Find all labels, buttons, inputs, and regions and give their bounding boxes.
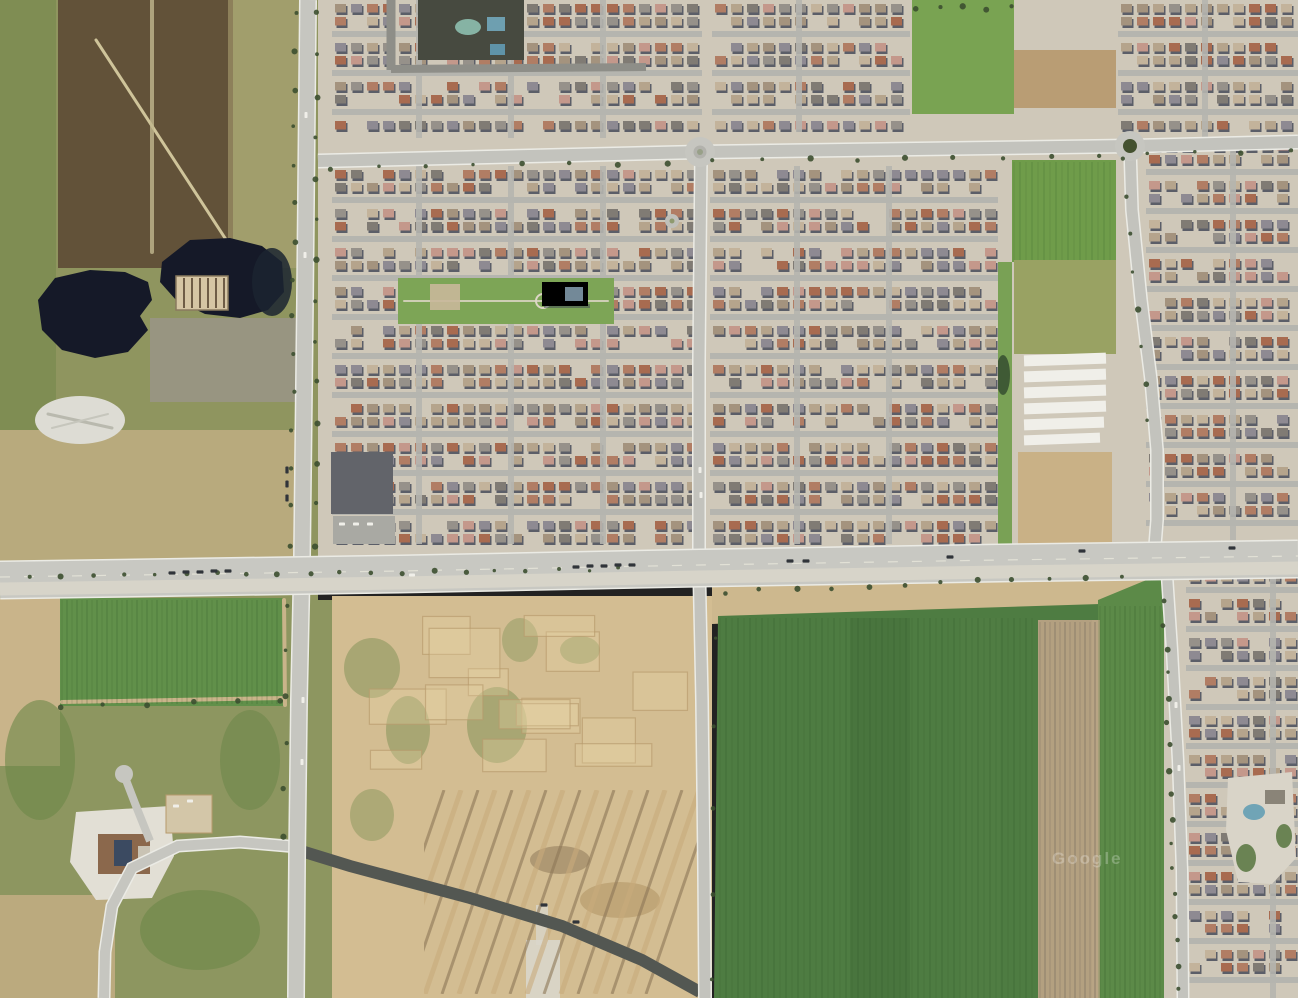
house-roof (1213, 350, 1224, 359)
house-roof (463, 495, 474, 504)
house-roof (1153, 17, 1164, 26)
house-roof (811, 43, 822, 52)
house-roof (1237, 729, 1248, 738)
tree (1170, 866, 1174, 870)
house-roof (713, 248, 724, 257)
tree (983, 7, 989, 13)
house-roof (399, 56, 410, 65)
house-roof (1285, 638, 1296, 647)
house-roof (809, 170, 820, 179)
house-roof (335, 17, 346, 26)
house-roof (607, 17, 618, 26)
house-roof (953, 339, 964, 348)
house-roof (687, 95, 698, 104)
tree (291, 124, 295, 128)
house-roof (825, 209, 836, 218)
house-roof (447, 443, 458, 452)
house-roof (479, 248, 490, 257)
tree (1289, 148, 1293, 152)
house-roof (1221, 638, 1232, 647)
house-roof (761, 404, 772, 413)
house-roof (827, 4, 838, 13)
house-roof (1185, 56, 1196, 65)
vehicle (1229, 546, 1236, 549)
house-roof (729, 287, 740, 296)
house-roof (985, 521, 996, 530)
house-roof (399, 17, 410, 26)
house-roof (527, 56, 538, 65)
tree (1009, 4, 1013, 8)
house-roof (559, 121, 570, 130)
house-roof (655, 482, 666, 491)
house-roof (715, 56, 726, 65)
house-roof (671, 95, 682, 104)
house-roof (761, 222, 772, 231)
house-roof (655, 222, 666, 231)
street (1146, 169, 1298, 175)
house-roof (399, 404, 410, 413)
house-roof (671, 482, 682, 491)
house-roof (1181, 428, 1192, 437)
house-roof (671, 495, 682, 504)
house-roof (1237, 638, 1248, 647)
house-roof (447, 417, 458, 426)
house-roof (687, 4, 698, 13)
vehicle (211, 569, 218, 572)
tree (122, 572, 126, 576)
tree (1097, 154, 1101, 158)
tree (829, 587, 834, 592)
house-roof (1245, 415, 1256, 424)
house-roof (607, 4, 618, 13)
house-roof (543, 222, 554, 231)
house-roof (495, 495, 506, 504)
house-roof (969, 183, 980, 192)
house-roof (1149, 259, 1160, 268)
house-roof (607, 222, 618, 231)
house-roof (1261, 506, 1272, 515)
house-roof (479, 121, 490, 130)
house-roof (1205, 638, 1216, 647)
house-roof (1165, 493, 1176, 502)
house-roof (1197, 506, 1208, 515)
amenity-lawn-1 (1236, 844, 1256, 872)
house-roof (1261, 272, 1272, 281)
tree (315, 218, 318, 221)
vehicle (301, 759, 304, 765)
house-roof (431, 95, 442, 104)
house-roof (905, 339, 916, 348)
house-roof (809, 326, 820, 335)
house-roof (1165, 181, 1176, 190)
house-roof (875, 56, 886, 65)
house-roof (777, 300, 788, 309)
house-roof (857, 456, 868, 465)
house-roof (953, 170, 964, 179)
house-roof (905, 417, 916, 426)
house-roof (985, 170, 996, 179)
house-roof (825, 404, 836, 413)
house-roof (399, 378, 410, 387)
house-roof (921, 287, 932, 296)
house-roof (479, 82, 490, 91)
house-roof (809, 209, 820, 218)
tree (191, 699, 197, 705)
house-roof (655, 456, 666, 465)
house-roof (825, 443, 836, 452)
tree (314, 379, 319, 384)
house-roof (639, 82, 650, 91)
house-roof (1281, 82, 1292, 91)
tree (58, 573, 64, 579)
house-roof (335, 365, 346, 374)
house-roof (777, 339, 788, 348)
house-roof (383, 300, 394, 309)
house-roof (543, 495, 554, 504)
street (1146, 403, 1298, 409)
house-roof (575, 170, 586, 179)
house-roof (857, 365, 868, 374)
house-roof (873, 521, 884, 530)
street (1146, 364, 1298, 370)
house-roof (969, 339, 980, 348)
house-roof (1261, 155, 1272, 164)
house-roof (747, 17, 758, 26)
house-roof (559, 43, 570, 52)
house-roof (715, 4, 726, 13)
house-roof (655, 209, 666, 218)
house-roof (875, 43, 886, 52)
house-roof (1205, 677, 1216, 686)
house-roof (383, 248, 394, 257)
house-roof (985, 365, 996, 374)
house-roof (1265, 56, 1276, 65)
house-roof (671, 300, 682, 309)
house-roof (335, 339, 346, 348)
house-roof (1165, 506, 1176, 515)
house-roof (1261, 376, 1272, 385)
tree (1160, 623, 1165, 628)
house-roof (729, 495, 740, 504)
house-roof (873, 183, 884, 192)
house-roof (1197, 467, 1208, 476)
house-roof (543, 4, 554, 13)
house-roof (777, 521, 788, 530)
house-roof (1261, 220, 1272, 229)
house-roof (623, 456, 634, 465)
house-roof (447, 495, 458, 504)
house-roof (1205, 846, 1216, 855)
house-roof (937, 365, 948, 374)
vehicle (285, 467, 288, 474)
house-roof (969, 521, 980, 530)
house-roof (843, 4, 854, 13)
house-roof (495, 326, 506, 335)
house-roof (479, 365, 490, 374)
street (712, 70, 910, 76)
house-roof (1181, 220, 1192, 229)
house-roof (1189, 755, 1200, 764)
tree (794, 586, 800, 592)
house-roof (1261, 454, 1272, 463)
house-roof (687, 82, 698, 91)
house-roof (921, 222, 932, 231)
house-roof (985, 339, 996, 348)
house-roof (463, 378, 474, 387)
tree (1193, 150, 1196, 153)
house-roof (447, 534, 458, 543)
tree (337, 570, 341, 574)
house-roof (1213, 220, 1224, 229)
house-roof (1205, 729, 1216, 738)
house-roof (905, 209, 916, 218)
house-roof (655, 378, 666, 387)
house-roof (827, 43, 838, 52)
house-roof (1189, 716, 1200, 725)
house-roof (1221, 911, 1232, 920)
house-roof (671, 378, 682, 387)
house-roof (559, 443, 570, 452)
house-roof (891, 56, 902, 65)
house-roof (399, 261, 410, 270)
house-roof (1249, 95, 1260, 104)
house-roof (399, 443, 410, 452)
commercial-building (331, 452, 393, 514)
house-roof (745, 404, 756, 413)
house-roof (639, 209, 650, 218)
house-roof (367, 43, 378, 52)
tree (400, 571, 405, 576)
house-roof (1165, 298, 1176, 307)
house-roof (527, 17, 538, 26)
house-roof (969, 326, 980, 335)
house-roof (713, 300, 724, 309)
residential-block (1146, 138, 1298, 540)
house-roof (367, 56, 378, 65)
vehicle (1178, 765, 1181, 771)
house-roof (1245, 220, 1256, 229)
street (712, 31, 910, 37)
house-roof (809, 482, 820, 491)
tree (615, 162, 621, 168)
tree (665, 161, 671, 167)
house-roof (1213, 181, 1224, 190)
tree (710, 158, 714, 162)
house-roof (953, 404, 964, 413)
house-roof (463, 170, 474, 179)
house-roof (671, 17, 682, 26)
house-roof (1281, 56, 1292, 65)
house-roof (1169, 17, 1180, 26)
tree (950, 155, 955, 160)
house-roof (431, 482, 442, 491)
tree (808, 155, 814, 161)
house-roof (607, 482, 618, 491)
street (332, 353, 704, 359)
house-roof (873, 365, 884, 374)
house-roof (607, 248, 618, 257)
house-roof (543, 326, 554, 335)
house-roof (575, 183, 586, 192)
house-roof (811, 4, 822, 13)
house-roof (1213, 493, 1224, 502)
house-roof (655, 300, 666, 309)
house-roof (1197, 389, 1208, 398)
house-roof (655, 121, 666, 130)
house-roof (1213, 194, 1224, 203)
house-roof (639, 482, 650, 491)
house-roof (857, 521, 868, 530)
street (710, 236, 998, 242)
house-roof (431, 495, 442, 504)
house-roof (777, 378, 788, 387)
house-roof (479, 404, 490, 413)
house-roof (431, 456, 442, 465)
house-roof (639, 404, 650, 413)
house-roof (399, 495, 410, 504)
house-roof (1221, 755, 1232, 764)
house-roof (1205, 768, 1216, 777)
house-roof (763, 4, 774, 13)
house-roof (905, 456, 916, 465)
house-roof (1165, 389, 1176, 398)
vehicle (285, 495, 288, 502)
house-roof (543, 183, 554, 192)
tree (295, 11, 299, 15)
house-roof (1277, 389, 1288, 398)
house-roof (985, 326, 996, 335)
house-roof (399, 482, 410, 491)
house-roof (399, 170, 410, 179)
tree (58, 705, 64, 711)
house-roof (687, 121, 698, 130)
house-roof (623, 17, 634, 26)
house-roof (543, 521, 554, 530)
house-roof (745, 456, 756, 465)
house-roof (857, 287, 868, 296)
roundabout-center-planting (697, 149, 703, 155)
house-roof (1245, 376, 1256, 385)
house-roof (543, 170, 554, 179)
house-roof (527, 404, 538, 413)
house-roof (811, 121, 822, 130)
house-roof (779, 56, 790, 65)
amenity-lawn-2 (1276, 824, 1292, 848)
house-roof (1277, 493, 1288, 502)
house-roof (1165, 311, 1176, 320)
house-roof (383, 443, 394, 452)
house-roof (399, 121, 410, 130)
tree (280, 834, 286, 840)
house-roof (639, 170, 650, 179)
house-roof (1277, 428, 1288, 437)
house-roof (655, 534, 666, 543)
house-roof (479, 456, 490, 465)
tree (902, 155, 908, 161)
house-roof (859, 95, 870, 104)
tree (315, 52, 319, 56)
house-roof (1285, 612, 1296, 621)
house-roof (1237, 716, 1248, 725)
house-roof (527, 326, 538, 335)
house-roof (1165, 233, 1176, 242)
house-roof (1245, 506, 1256, 515)
house-roof (809, 300, 820, 309)
house-roof (399, 521, 410, 530)
house-roof (891, 121, 902, 130)
house-roof (747, 121, 758, 130)
tree (314, 10, 319, 15)
house-roof (351, 365, 362, 374)
house-roof (1245, 298, 1256, 307)
house-roof (937, 443, 948, 452)
house-roof (383, 121, 394, 130)
house-roof (729, 443, 740, 452)
house-roof (953, 482, 964, 491)
house-roof (937, 209, 948, 218)
house-roof (777, 534, 788, 543)
house-roof (1197, 337, 1208, 346)
house-roof (905, 482, 916, 491)
house-roof (383, 82, 394, 91)
house-roof (985, 261, 996, 270)
house-roof (479, 534, 490, 543)
street (1146, 325, 1298, 331)
house-roof (1249, 82, 1260, 91)
house-roof (431, 339, 442, 348)
house-roof (623, 95, 634, 104)
house-roof (827, 121, 838, 130)
house-roof (825, 417, 836, 426)
house-roof (687, 43, 698, 52)
tree (1121, 156, 1125, 160)
street (710, 392, 998, 398)
vehicle (629, 563, 636, 566)
house-roof (527, 378, 538, 387)
house-roof (1189, 885, 1200, 894)
tree (28, 575, 32, 579)
house-roof (1277, 233, 1288, 242)
green-field-by-roundabout (1012, 160, 1116, 262)
house-roof (447, 95, 458, 104)
house-roof (575, 56, 586, 65)
house-roof (1205, 794, 1216, 803)
tree (289, 428, 293, 432)
house-roof (527, 248, 538, 257)
house-roof (937, 482, 948, 491)
vehicle (700, 492, 703, 498)
house-roof (607, 404, 618, 413)
house-roof (825, 183, 836, 192)
house-roof (873, 248, 884, 257)
tree (280, 786, 285, 791)
house-roof (1245, 493, 1256, 502)
house-roof (607, 170, 618, 179)
house-roof (335, 209, 346, 218)
tree (855, 158, 860, 163)
graded-pad (546, 632, 599, 671)
house-roof (969, 443, 980, 452)
house-roof (655, 404, 666, 413)
house-roof (1261, 467, 1272, 476)
house-roof (713, 443, 724, 452)
house-roof (1137, 43, 1148, 52)
street (416, 166, 422, 544)
house-roof (655, 326, 666, 335)
house-roof (985, 456, 996, 465)
house-roof (1149, 311, 1160, 320)
house-roof (431, 209, 442, 218)
